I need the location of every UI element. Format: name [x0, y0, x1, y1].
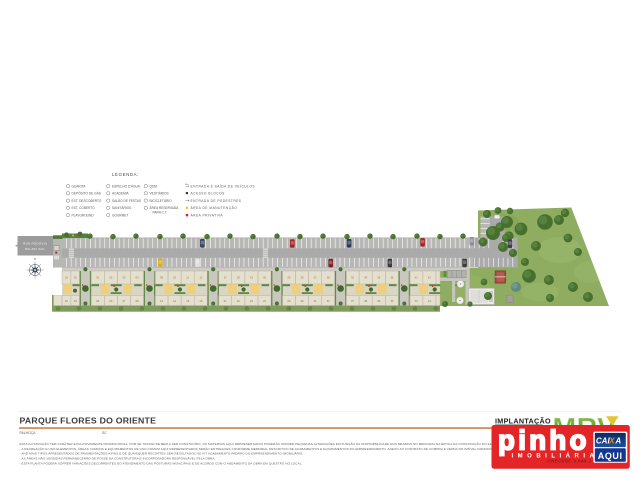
svg-text:14: 14	[173, 299, 176, 303]
svg-text:PLAYGROUND: PLAYGROUND	[72, 213, 95, 217]
svg-text:AQUI: AQUI	[598, 451, 623, 461]
svg-text:27: 27	[314, 276, 317, 280]
svg-text:40: 40	[390, 299, 393, 303]
svg-text:05: 05	[96, 299, 99, 303]
svg-text:04: 04	[74, 299, 77, 303]
svg-text:SC: SC	[102, 431, 107, 435]
svg-text:28: 28	[327, 276, 330, 280]
svg-text:ACESSO BLOCOS: ACESSO BLOCOS	[191, 192, 226, 196]
svg-text:ÁREA RESERVADA: ÁREA RESERVADA	[150, 206, 180, 210]
svg-text:SALÃO DE FESTAS: SALÃO DE FESTAS	[112, 198, 141, 203]
svg-text:BR-282 SUL: BR-282 SUL	[25, 247, 45, 251]
svg-text:A: A	[614, 437, 621, 446]
svg-text:18: 18	[237, 276, 240, 280]
svg-text:02: 02	[74, 276, 77, 280]
svg-text:ÁREA PRIVATIVA: ÁREA PRIVATIVA	[191, 213, 224, 217]
svg-text:26: 26	[300, 276, 303, 280]
svg-text:EST. COBERTO: EST. COBERTO	[72, 206, 96, 210]
svg-text:PARQUE FLORES DO ORIENTE: PARQUE FLORES DO ORIENTE	[20, 415, 157, 425]
svg-text:29: 29	[287, 299, 290, 303]
svg-text:GOURMET: GOURMET	[112, 213, 128, 217]
svg-text:N: N	[34, 257, 36, 261]
svg-text:39: 39	[377, 299, 380, 303]
svg-text:22: 22	[237, 299, 240, 303]
svg-text:ÁREA DE MANUTENÇÃO: ÁREA DE MANUTENÇÃO	[191, 205, 238, 210]
svg-text:01: 01	[96, 276, 99, 280]
svg-text:RUA RODOVIA: RUA RODOVIA	[23, 242, 47, 246]
svg-text:13: 13	[160, 299, 163, 303]
svg-text:QDM: QDM	[150, 184, 158, 188]
svg-text:36: 36	[390, 276, 393, 280]
svg-text:- AS ÁREAS NÃO VENDIDAS PERMAN: - AS ÁREAS NÃO VENDIDAS PERMANECERÃO DE …	[20, 456, 216, 461]
svg-text:30: 30	[300, 299, 303, 303]
svg-text:38: 38	[364, 299, 367, 303]
svg-text:EST. DESCOBERTO: EST. DESCOBERTO	[72, 199, 102, 203]
svg-text:04: 04	[136, 276, 139, 280]
svg-text:03: 03	[65, 299, 68, 303]
svg-text:ESPELHO D'ÁGUA: ESPELHO D'ÁGUA	[112, 184, 141, 188]
svg-text:19: 19	[250, 276, 253, 280]
svg-text:35: 35	[377, 276, 380, 280]
svg-text:43: 43	[415, 299, 418, 303]
svg-text:- AND MAIS TIPOS APRESENTADOS: - AND MAIS TIPOS APRESENTADOS DE PAVIMEN…	[20, 451, 304, 456]
svg-text:GUARITA: GUARITA	[72, 184, 87, 188]
svg-text:BICICLETÁRIO: BICICLETÁRIO	[150, 199, 173, 203]
svg-text:02: 02	[109, 276, 112, 280]
svg-text:07: 07	[123, 299, 126, 303]
svg-text:DEPÓSITO DE GÁS: DEPÓSITO DE GÁS	[72, 191, 101, 196]
svg-text:23: 23	[250, 299, 253, 303]
svg-text:- A RECREAÇÃO E USO ELEMENTOS,: - A RECREAÇÃO E USO ELEMENTOS, ÁREAS COM…	[20, 446, 524, 451]
svg-text:34: 34	[364, 276, 367, 280]
svg-text:06: 06	[109, 299, 112, 303]
svg-text:32: 32	[327, 299, 330, 303]
svg-text:ENTRADA E SAÍDA DE VEÍCULOS: ENTRADA E SAÍDA DE VEÍCULOS	[191, 184, 256, 188]
svg-text:24: 24	[263, 299, 266, 303]
svg-text:pinho: pinho	[498, 425, 590, 456]
svg-text:21: 21	[224, 299, 227, 303]
svg-text:X: X	[608, 437, 615, 446]
svg-text:20: 20	[263, 276, 266, 280]
svg-text:15: 15	[186, 299, 189, 303]
svg-text:12: 12	[199, 276, 202, 280]
svg-text:31: 31	[314, 299, 317, 303]
svg-text:ENTRADA DE PEDESTRES: ENTRADA DE PEDESTRES	[191, 199, 242, 203]
svg-text:01: 01	[65, 276, 68, 280]
svg-text:- ESTA PLANTA PODERÁ SOFRER VA: - ESTA PLANTA PODERÁ SOFRER VARIAÇÕES DE…	[20, 460, 303, 465]
svg-text:03: 03	[123, 276, 126, 280]
svg-text:33: 33	[351, 276, 354, 280]
svg-text:PALHOÇA: PALHOÇA	[20, 431, 37, 435]
svg-text:42: 42	[428, 276, 431, 280]
svg-text:08: 08	[136, 299, 139, 303]
svg-text:SANITÁRIOS: SANITÁRIOS	[112, 206, 131, 210]
svg-text:17: 17	[224, 276, 227, 280]
svg-text:16: 16	[199, 299, 202, 303]
svg-text:25: 25	[287, 276, 290, 280]
svg-text:10: 10	[173, 276, 176, 280]
svg-text:LEGENDA:: LEGENDA:	[112, 172, 139, 177]
svg-text:09: 09	[160, 276, 163, 280]
svg-text:CRECI/SC 3.040-J: CRECI/SC 3.040-J	[548, 458, 592, 463]
svg-text:44: 44	[428, 299, 431, 303]
svg-text:VESTIÁRIOS: VESTIÁRIOS	[150, 192, 169, 196]
svg-text:CAI: CAI	[596, 437, 611, 446]
svg-text:37: 37	[351, 299, 354, 303]
svg-text:PARA C.T.: PARA C.T.	[153, 210, 168, 214]
svg-text:ACADEMIA: ACADEMIA	[112, 192, 130, 196]
svg-text:41: 41	[415, 276, 418, 280]
